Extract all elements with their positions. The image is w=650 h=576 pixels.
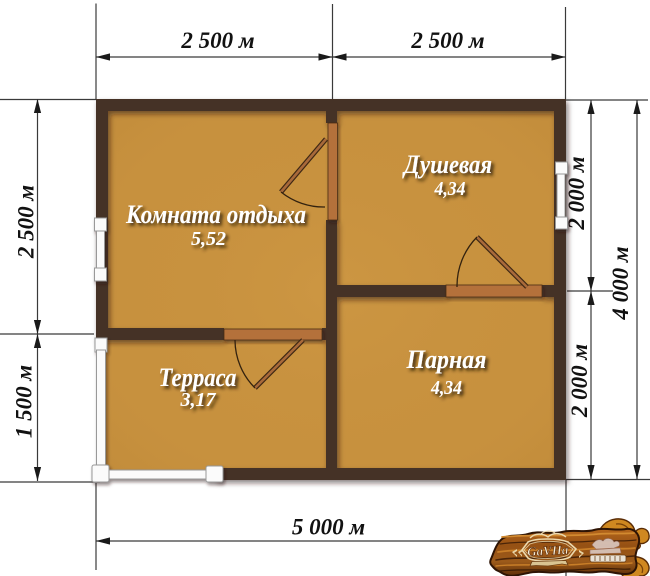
svg-text:2 500 м: 2 500 м xyxy=(410,28,484,53)
svg-text:GaVHa: GaVHa xyxy=(527,542,569,559)
svg-text:2 000 м: 2 000 м xyxy=(567,344,592,418)
svg-text:2 500 м: 2 500 м xyxy=(180,28,254,53)
svg-text:4 000 м: 4 000 м xyxy=(608,246,633,320)
svg-text:4,34: 4,34 xyxy=(430,377,462,399)
svg-text:5,52: 5,52 xyxy=(191,228,226,250)
svg-text:Парная: Парная xyxy=(406,345,487,374)
svg-text:5 000 м: 5 000 м xyxy=(292,515,365,540)
svg-text:Душевая: Душевая xyxy=(402,150,492,179)
svg-text:3,17: 3,17 xyxy=(180,389,217,411)
svg-text:2 500 м: 2 500 м xyxy=(14,185,39,259)
svg-text:Терраса: Терраса xyxy=(159,363,237,392)
svg-text:4,34: 4,34 xyxy=(434,178,466,200)
svg-text:1 500 м: 1 500 м xyxy=(12,365,37,438)
svg-text:Комната отдыха: Комната отдыха xyxy=(125,200,306,229)
